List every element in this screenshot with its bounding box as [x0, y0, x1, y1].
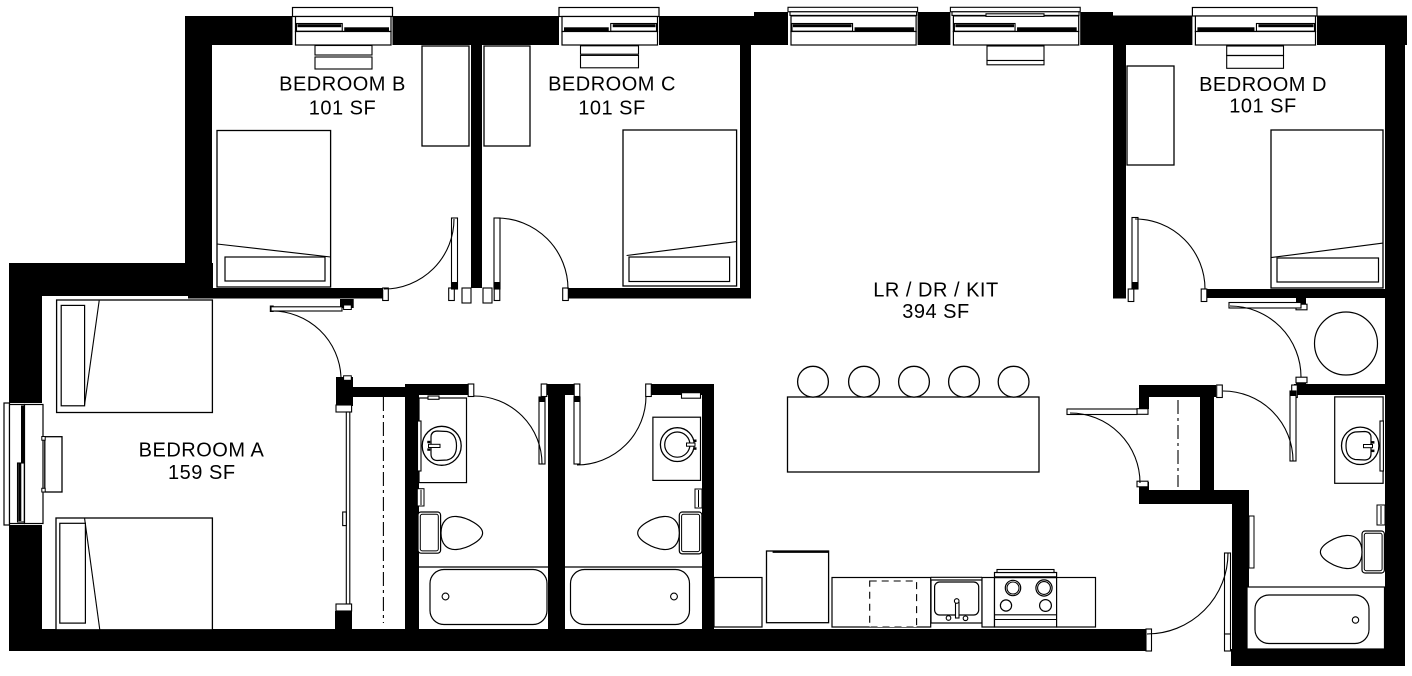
svg-text:LR / DR / KIT: LR / DR / KIT [873, 280, 998, 302]
svg-text:101 SF: 101 SF [578, 98, 645, 120]
svg-text:101 SF: 101 SF [1229, 96, 1296, 118]
svg-text:BEDROOM C: BEDROOM C [548, 74, 676, 96]
svg-text:BEDROOM A: BEDROOM A [139, 440, 265, 462]
svg-text:BEDROOM D: BEDROOM D [1199, 74, 1327, 96]
svg-text:101 SF: 101 SF [309, 98, 376, 120]
svg-text:159 SF: 159 SF [168, 462, 235, 484]
svg-text:BEDROOM B: BEDROOM B [279, 74, 406, 96]
svg-text:394 SF: 394 SF [902, 301, 969, 323]
